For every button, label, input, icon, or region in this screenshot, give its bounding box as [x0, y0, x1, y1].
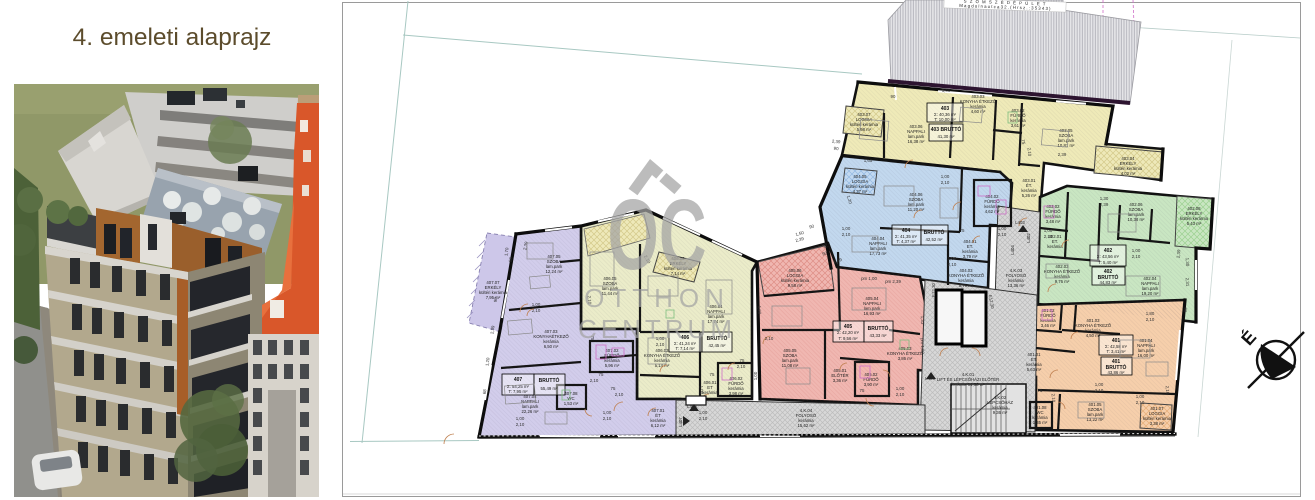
svg-text:2,10: 2,10 — [516, 422, 525, 427]
svg-text:43,86 m²: 43,86 m² — [1108, 370, 1126, 375]
svg-text:4. emeleti alaprajz: 4. emeleti alaprajz — [73, 24, 272, 51]
svg-text:BRUTTÓ: BRUTTÓ — [924, 228, 945, 236]
svg-text:5,98 m²: 5,98 m² — [857, 127, 872, 132]
svg-text:2,39: 2,39 — [1176, 249, 1182, 259]
svg-text:5,43 m²: 5,43 m² — [1187, 221, 1202, 226]
svg-text:5,63 m²: 5,63 m² — [1027, 367, 1042, 372]
svg-text:3,98 m²: 3,98 m² — [729, 391, 744, 396]
svg-text:1,00: 1,00 — [603, 410, 612, 415]
svg-text:2,31: 2,31 — [1185, 278, 1190, 287]
svg-text:75: 75 — [1038, 388, 1043, 393]
svg-text:1,00: 1,00 — [942, 88, 951, 93]
svg-text:19,20 m²: 19,20 m² — [1142, 291, 1160, 296]
svg-text:3,86 m²: 3,86 m² — [898, 356, 913, 361]
svg-text:1,00: 1,00 — [1044, 228, 1053, 233]
svg-text:3,48 m²: 3,48 m² — [1046, 219, 1061, 224]
svg-text:2,10: 2,10 — [1146, 317, 1155, 322]
svg-text:1,00: 1,00 — [1132, 248, 1141, 253]
svg-text:2,10: 2,10 — [1165, 386, 1170, 395]
svg-text:4,50 m²: 4,50 m² — [1086, 333, 1101, 338]
svg-text:pm 1,00: pm 1,00 — [861, 276, 877, 281]
svg-text:55,49 m²: 55,49 m² — [541, 386, 559, 391]
svg-text:2,39: 2,39 — [832, 139, 842, 145]
svg-text:6,50 m²: 6,50 m² — [544, 344, 559, 349]
svg-text:CENTRUM: CENTRUM — [578, 314, 736, 344]
svg-text:3,46 m²: 3,46 m² — [1041, 323, 1056, 328]
svg-text:2,39: 2,39 — [1100, 202, 1109, 207]
svg-text:T: 9,56 m²: T: 9,56 m² — [838, 336, 858, 341]
svg-text:OTTHON: OTTHON — [584, 283, 730, 313]
svg-text:2,10: 2,10 — [603, 416, 612, 421]
svg-text:42,52 m²: 42,52 m² — [926, 237, 944, 242]
svg-text:403 BRUTTÓ: 403 BRUTTÓ — [931, 125, 962, 133]
svg-text:15,62 m²: 15,62 m² — [798, 423, 816, 428]
svg-text:2,10: 2,10 — [941, 180, 950, 185]
svg-text:1,00: 1,00 — [757, 306, 762, 315]
svg-text:L404: L404 — [1010, 245, 1015, 255]
svg-text:6,12 m²: 6,12 m² — [651, 423, 666, 428]
svg-text:1,35 m²: 1,35 m² — [1033, 420, 1048, 425]
svg-text:L403: L403 — [1015, 220, 1025, 225]
svg-text:T: 10,00 m²: T: 10,00 m² — [934, 117, 956, 122]
svg-text:T: 3,41 m²: T: 3,41 m² — [1106, 349, 1126, 354]
svg-text:3,36 m²: 3,36 m² — [833, 378, 848, 383]
svg-text:1,00: 1,00 — [516, 416, 525, 421]
svg-text:pm 2,39: pm 2,39 — [885, 279, 901, 284]
svg-text:1,00: 1,00 — [998, 226, 1007, 231]
svg-text:11,08 m²: 11,08 m² — [782, 363, 799, 368]
svg-text:1,00: 1,00 — [941, 174, 950, 179]
svg-text:2,10: 2,10 — [1027, 147, 1033, 157]
svg-text:1,00: 1,00 — [896, 386, 905, 391]
svg-text:2,10: 2,10 — [842, 232, 851, 237]
svg-text:9,76 m²: 9,76 m² — [1055, 279, 1070, 284]
svg-text:16,93 m²: 16,93 m² — [864, 311, 882, 316]
svg-text:4,37 m²: 4,37 m² — [853, 189, 868, 194]
svg-text:1,00: 1,00 — [753, 371, 758, 380]
svg-text:3,38 m²: 3,38 m² — [1150, 421, 1165, 426]
svg-text:1,30: 1,30 — [1185, 258, 1190, 267]
svg-text:2,10: 2,10 — [1095, 388, 1104, 393]
svg-text:2,10: 2,10 — [765, 336, 774, 341]
svg-text:43,33 m²: 43,33 m² — [870, 333, 888, 338]
svg-text:1,00: 1,00 — [842, 226, 851, 231]
svg-text:T: 4,37 m²: T: 4,37 m² — [896, 239, 916, 244]
svg-text:4,62 m²: 4,62 m² — [985, 209, 1000, 214]
svg-text:Σ: 42,20 m²: Σ: 42,20 m² — [837, 330, 860, 335]
svg-text:75: 75 — [740, 358, 745, 363]
svg-text:75: 75 — [860, 388, 865, 393]
svg-text:2,39: 2,39 — [1058, 152, 1067, 157]
svg-text:1,30: 1,30 — [1100, 196, 1109, 201]
svg-text:1,00: 1,00 — [699, 385, 705, 395]
svg-text:44,83 m²: 44,83 m² — [1100, 280, 1118, 285]
svg-text:BRUTTÓ: BRUTTÓ — [868, 324, 889, 332]
svg-text:13,36 m²: 13,36 m² — [1008, 283, 1026, 288]
svg-text:2,10: 2,10 — [737, 364, 746, 369]
svg-text:OC: OC — [608, 178, 707, 290]
svg-text:407: 407 — [514, 377, 523, 383]
svg-text:2,10: 2,10 — [590, 378, 599, 383]
svg-text:75: 75 — [611, 386, 616, 391]
svg-text:22,26 m²: 22,26 m² — [522, 409, 540, 414]
svg-text:1,00: 1,00 — [1095, 382, 1104, 387]
svg-text:9,36 m²: 9,36 m² — [993, 410, 1008, 415]
svg-text:2,10: 2,10 — [1051, 393, 1057, 403]
svg-text:5,26 m²: 5,26 m² — [1022, 193, 1037, 198]
svg-text:L402: L402 — [1026, 233, 1031, 243]
svg-text:4,60 m²: 4,60 m² — [971, 109, 986, 114]
svg-text:5,96 m²: 5,96 m² — [605, 363, 620, 368]
svg-text:Σ: 43,56 m²: Σ: 43,56 m² — [1097, 254, 1120, 259]
svg-text:2,10: 2,10 — [1136, 400, 1145, 405]
svg-text:pm 1,00: pm 1,00 — [920, 338, 926, 355]
svg-text:1,00: 1,00 — [948, 256, 957, 261]
svg-text:1,33: 1,33 — [920, 316, 925, 325]
svg-text:9,58 m²: 9,58 m² — [788, 283, 803, 288]
svg-text:16,38 m²: 16,38 m² — [908, 139, 926, 144]
svg-text:T: 5,40 m²: T: 5,40 m² — [1098, 260, 1118, 265]
svg-text:1,80: 1,80 — [1146, 311, 1155, 316]
svg-text:2,10: 2,10 — [1044, 234, 1053, 239]
svg-text:2,10: 2,10 — [699, 416, 708, 421]
svg-text:1,00: 1,00 — [699, 410, 708, 415]
svg-text:2,10: 2,10 — [948, 262, 957, 267]
svg-text:2,10: 2,10 — [896, 392, 905, 397]
svg-text:1,53 m²: 1,53 m² — [564, 401, 579, 406]
svg-text:1,65: 1,65 — [864, 158, 873, 163]
svg-text:5,79 m²: 5,79 m² — [959, 283, 974, 288]
svg-text:2,10: 2,10 — [998, 232, 1007, 237]
svg-text:90: 90 — [891, 94, 896, 99]
svg-text:BRUTTÓ: BRUTTÓ — [539, 376, 560, 384]
svg-text:E12,30: E12,30 — [931, 282, 936, 296]
svg-text:kerámia: kerámia — [1047, 244, 1063, 249]
svg-text:16,00 m²: 16,00 m² — [1138, 353, 1156, 358]
svg-text:1,00: 1,00 — [1136, 394, 1145, 399]
svg-text:75: 75 — [599, 372, 604, 377]
svg-text:4,02 m²: 4,02 m² — [1121, 171, 1136, 176]
svg-text:kerámia 14,56 m²: kerámia 14,56 m² — [951, 382, 985, 387]
svg-text:75: 75 — [960, 228, 965, 233]
svg-text:L407: L407 — [678, 417, 683, 427]
svg-text:3,79 m²: 3,79 m² — [963, 254, 978, 259]
svg-text:3,90 m²: 3,90 m² — [864, 382, 879, 387]
svg-text:75: 75 — [710, 372, 715, 377]
svg-text:1,00: 1,00 — [532, 302, 541, 307]
svg-text:T: 7,14 m²: T: 7,14 m² — [675, 346, 695, 351]
svg-text:2,10: 2,10 — [1132, 254, 1141, 259]
svg-text:11,20 m²: 11,20 m² — [908, 207, 925, 212]
svg-text:2,10: 2,10 — [615, 392, 624, 397]
svg-text:3,61 m²: 3,61 m² — [1011, 123, 1026, 128]
svg-text:12,24 m²: 12,24 m² — [546, 269, 564, 274]
svg-text:41,30 m²: 41,30 m² — [938, 134, 956, 139]
